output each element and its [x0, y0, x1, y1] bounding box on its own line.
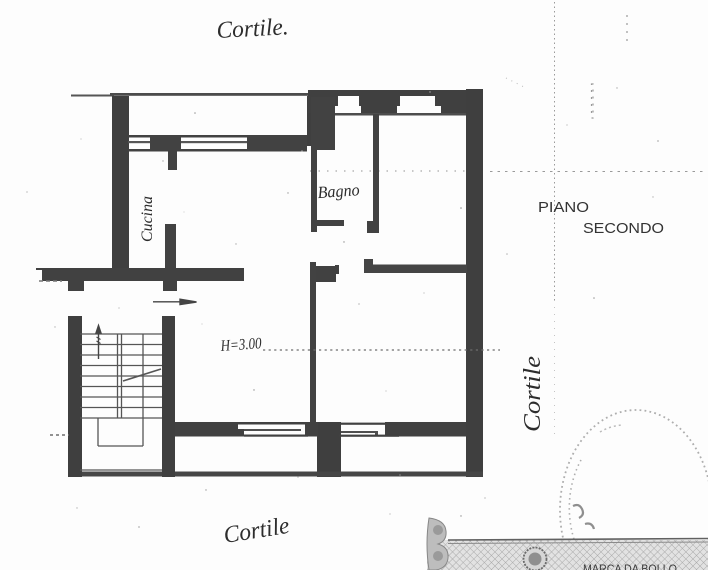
svg-text:PIANO: PIANO	[538, 199, 589, 216]
svg-text:Cucina: Cucina	[139, 196, 156, 242]
svg-text:Bagno: Bagno	[317, 180, 360, 202]
svg-text:H=3.00: H=3.00	[219, 335, 262, 355]
svg-text:SECONDO: SECONDO	[583, 220, 664, 237]
svg-text:Cortile.: Cortile.	[216, 14, 289, 44]
svg-text:MARCA DA BOLLO: MARCA DA BOLLO	[583, 562, 677, 570]
svg-text:Cortile: Cortile	[520, 356, 546, 432]
